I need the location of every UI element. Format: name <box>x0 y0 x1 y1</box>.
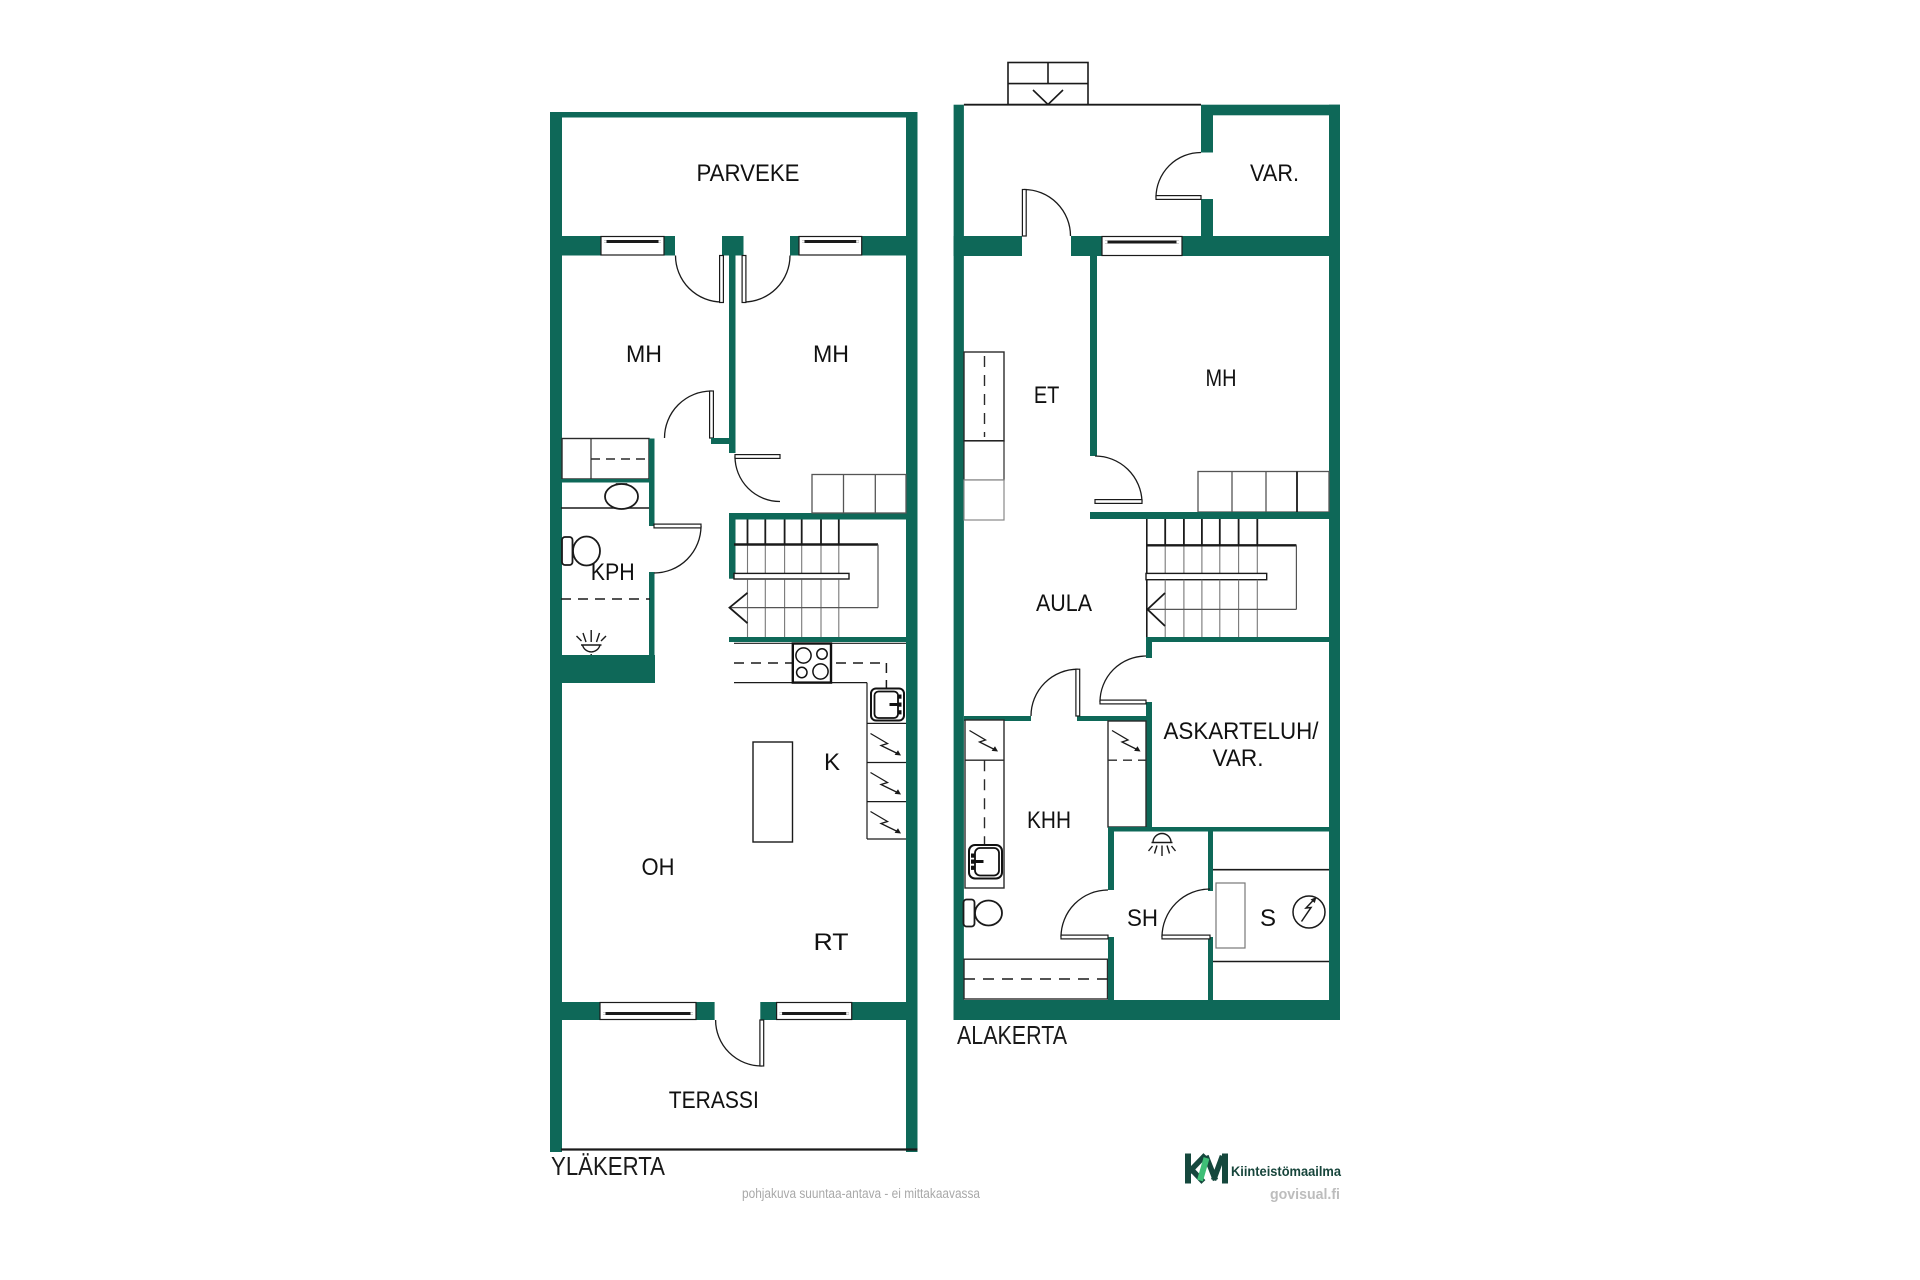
svg-text:K: K <box>824 749 840 776</box>
svg-text:RT: RT <box>814 929 849 956</box>
svg-text:PARVEKE: PARVEKE <box>697 160 800 187</box>
svg-text:MH: MH <box>813 341 849 368</box>
svg-text:SH: SH <box>1127 905 1158 932</box>
svg-text:OH: OH <box>642 854 675 881</box>
svg-text:KPH: KPH <box>591 559 635 586</box>
svg-text:govisual.fi: govisual.fi <box>1270 1187 1340 1203</box>
svg-text:pohjakuva suuntaa-antava - ei: pohjakuva suuntaa-antava - ei mittakaava… <box>742 1186 980 1201</box>
svg-text:VAR.: VAR. <box>1250 160 1299 187</box>
svg-text:KHH: KHH <box>1027 807 1071 834</box>
svg-text:TERASSI: TERASSI <box>669 1087 759 1114</box>
svg-text:MH: MH <box>626 341 662 368</box>
svg-text:ET: ET <box>1034 382 1060 409</box>
svg-text:S: S <box>1260 905 1276 932</box>
svg-text:VAR.: VAR. <box>1213 745 1264 772</box>
svg-text:MH: MH <box>1206 365 1237 392</box>
svg-text:ASKARTELUH/: ASKARTELUH/ <box>1164 718 1319 745</box>
svg-text:YLÄKERTA: YLÄKERTA <box>551 1151 666 1181</box>
svg-text:ALAKERTA: ALAKERTA <box>957 1020 1068 1050</box>
svg-text:AULA: AULA <box>1036 590 1092 617</box>
svg-text:Kiinteistömaailma: Kiinteistömaailma <box>1231 1164 1341 1179</box>
